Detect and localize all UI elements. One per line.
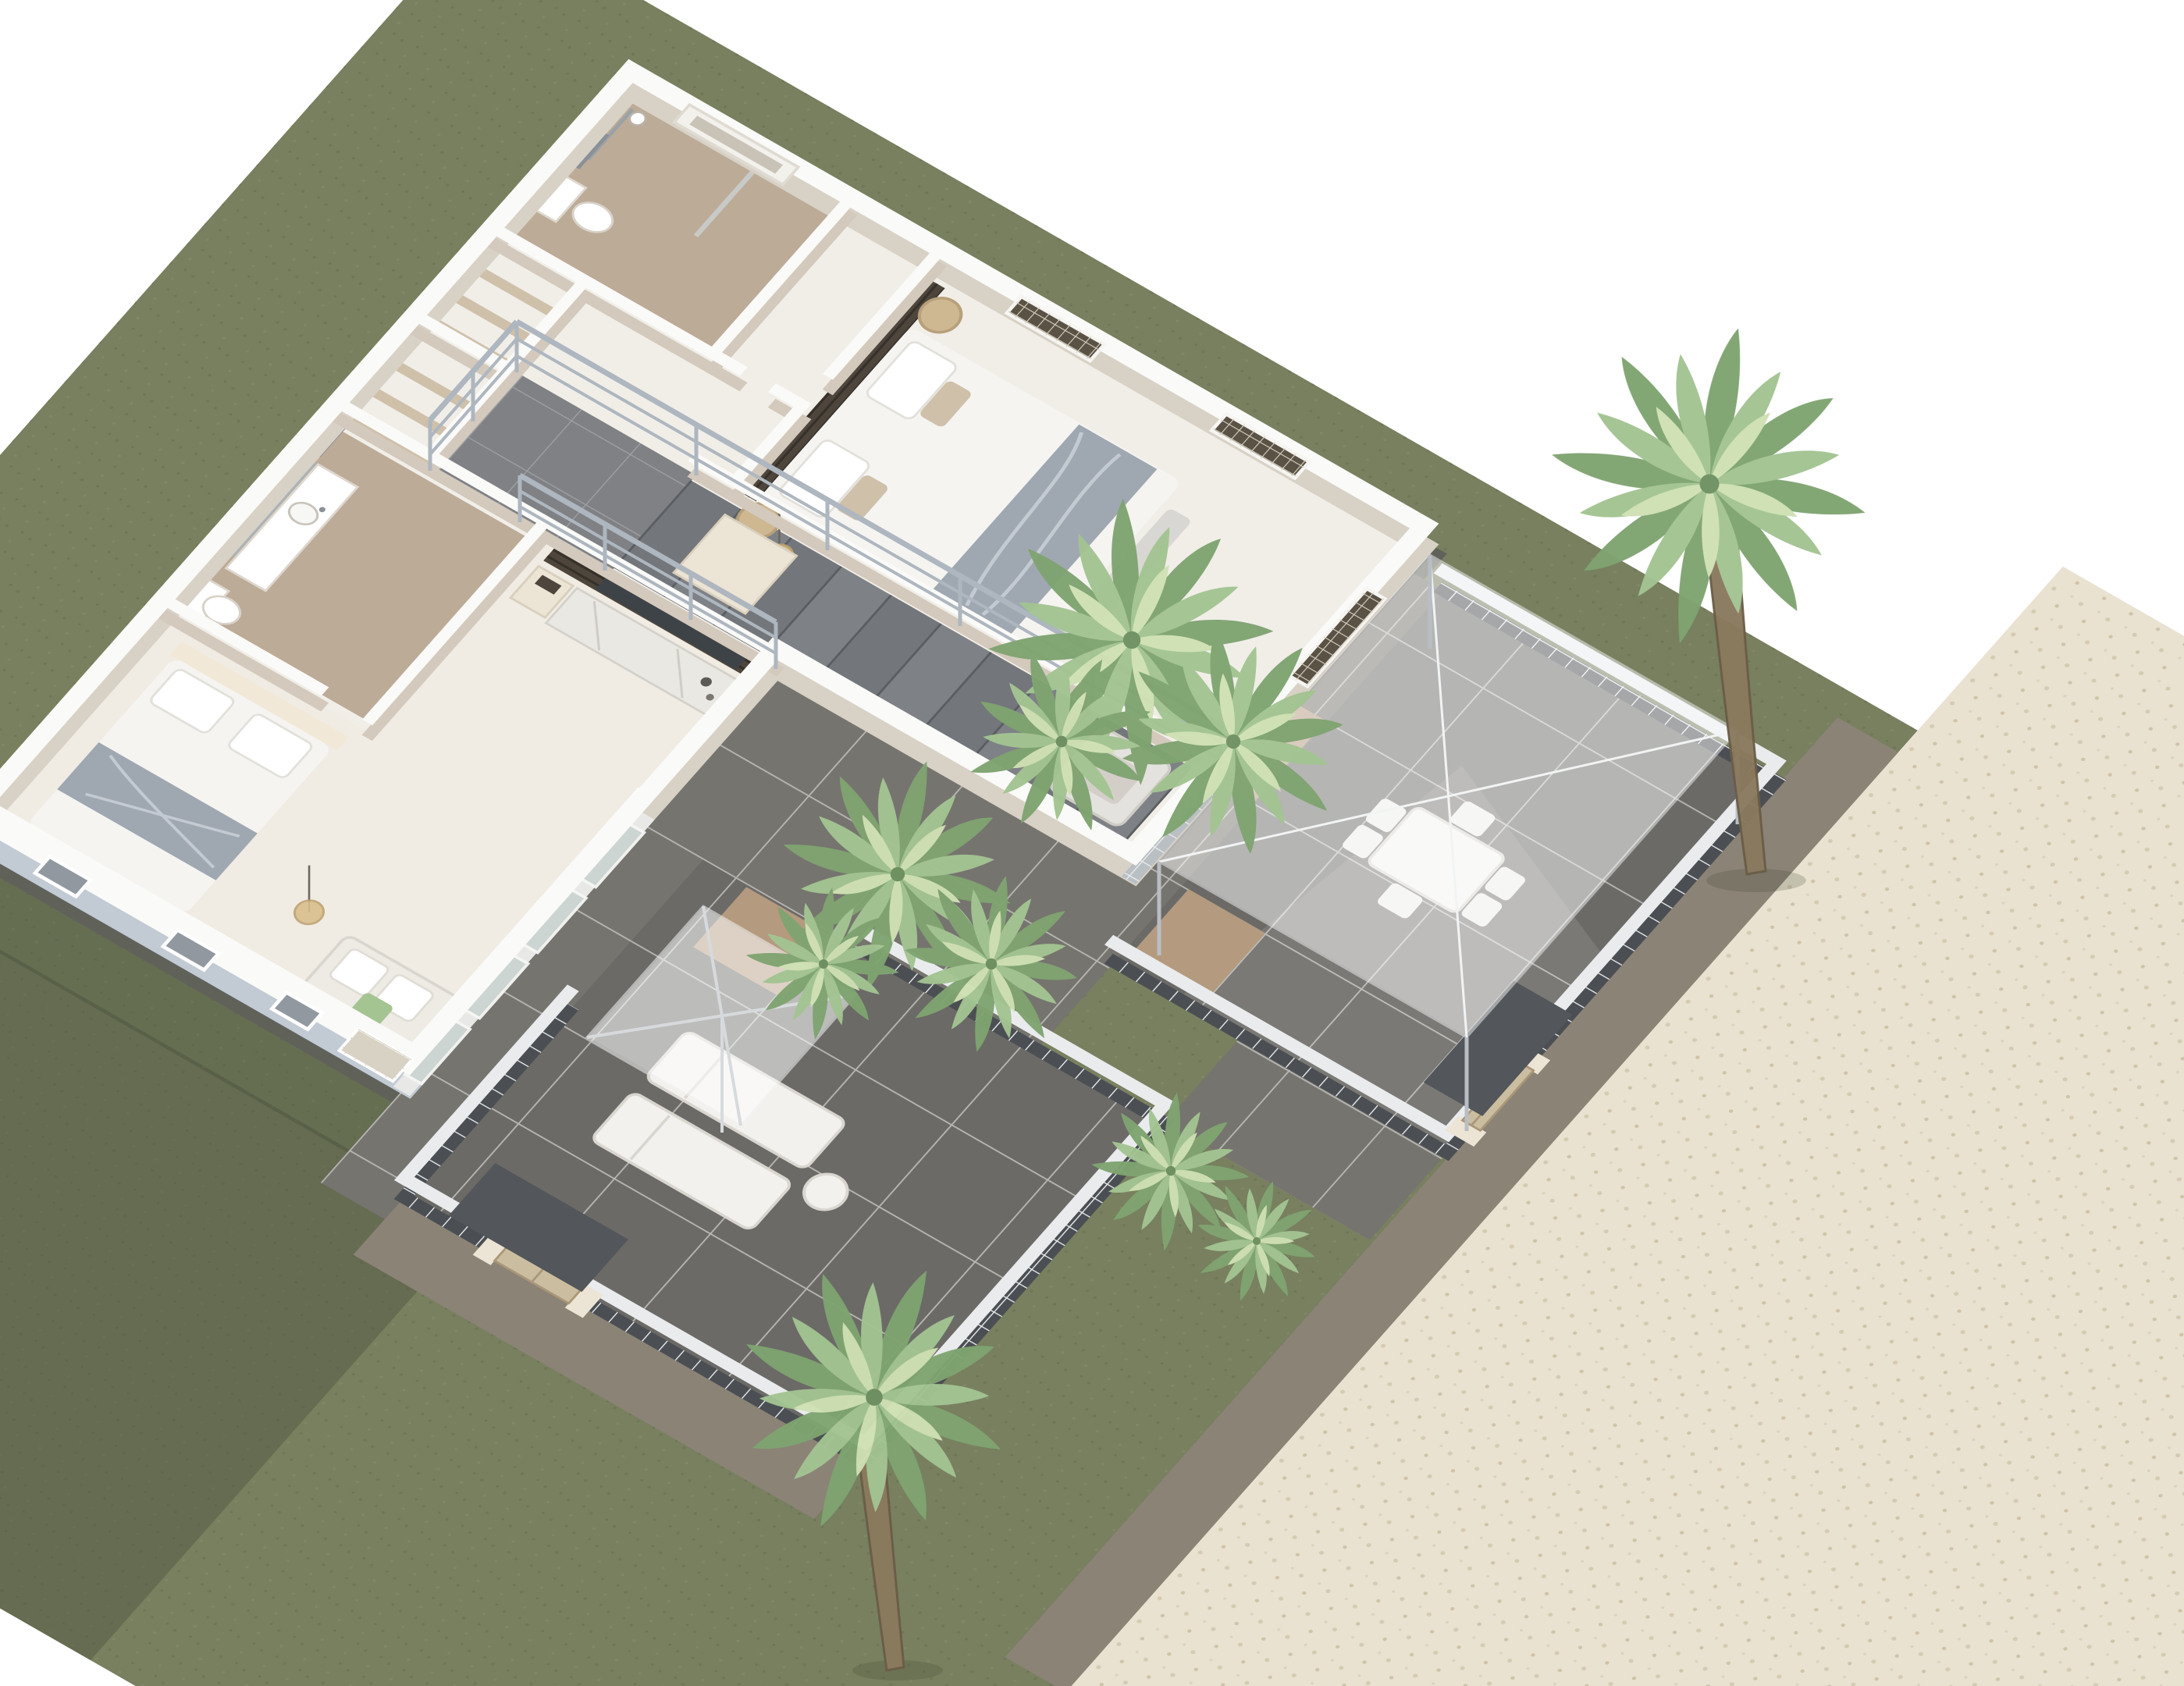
render-canvas [0,0,2184,1686]
villa-axonometric-svg [0,0,2184,1686]
